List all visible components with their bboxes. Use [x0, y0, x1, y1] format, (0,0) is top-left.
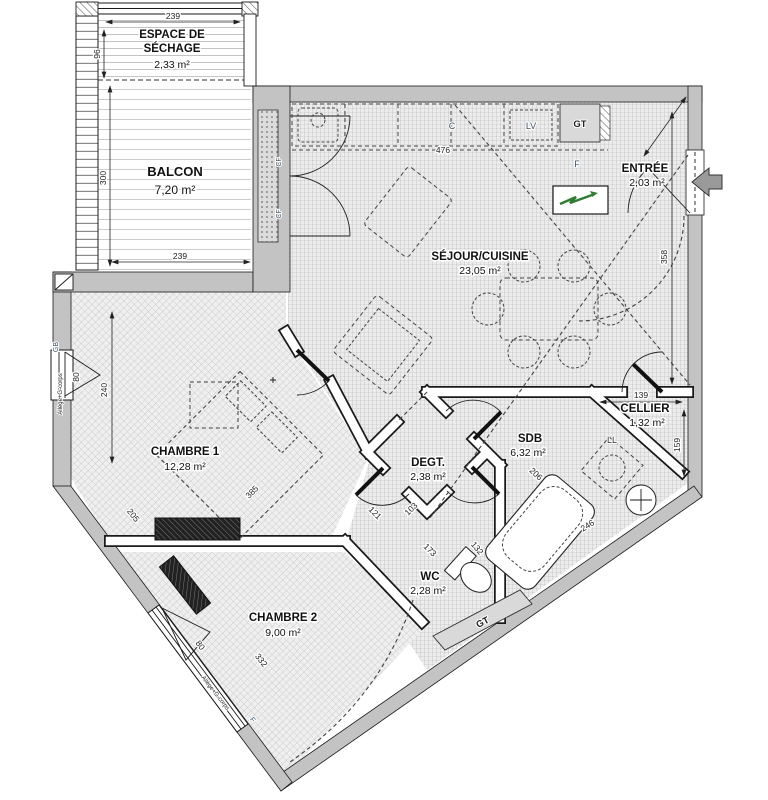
dim-cellier-height: 159	[672, 438, 682, 452]
floor-plan-page: ESPACE DE SÉCHAGE 2,33 m² BALCON 7,20 m²…	[0, 0, 768, 800]
dim-sejour-height: 358	[659, 250, 669, 264]
label-gt-top: GT	[573, 119, 586, 130]
label-ll: LL	[607, 435, 617, 445]
room-area-degt: 2,38 m²	[410, 471, 446, 483]
room-label-chambre2: CHAMBRE 2	[249, 612, 317, 624]
label-cf-a: CF	[276, 157, 283, 166]
room-area-entree: 2,03 m²	[629, 177, 665, 189]
dim-sechage-height: 96	[92, 49, 102, 59]
dim-kitchen-width: 476	[436, 145, 450, 155]
dim-chambre1-window: 80	[71, 372, 81, 382]
room-area-chambre1: 12,28 m²	[164, 461, 206, 473]
wall-right-upper	[688, 86, 702, 152]
room-area-cellier: 1,32 m²	[629, 417, 665, 429]
room-label-sejour: SÉJOUR/CUISINE	[431, 250, 528, 263]
room-label-entree: ENTRÉE	[622, 162, 669, 175]
room-area-wc: 2,28 m²	[410, 585, 446, 597]
label-c: C	[449, 121, 456, 131]
label-lv: LV	[526, 121, 536, 131]
label-cf-b: CF	[276, 209, 283, 218]
wardrobe-1	[155, 518, 240, 540]
wall-right-lower	[688, 213, 702, 497]
dim-cellier-width: 139	[634, 390, 648, 400]
corner-hatch-tl	[76, 2, 98, 16]
dim-balcon-height: 300	[98, 171, 108, 185]
label-allege-ch1: Allège+G-corps	[58, 373, 64, 415]
room-label-cellier: CELLIER	[620, 403, 670, 415]
room-area-sejour: 23,05 m²	[459, 265, 501, 277]
room-area-balcon: 7,20 m²	[155, 183, 196, 197]
sechage-column	[244, 14, 256, 86]
room-label-sechage-2: SÉCHAGE	[144, 42, 201, 55]
wall-top	[253, 86, 702, 102]
dim-balcon-width: 239	[173, 251, 187, 261]
label-f-entree: F	[574, 159, 580, 169]
floor-plan-svg: ESPACE DE SÉCHAGE 2,33 m² BALCON 7,20 m²…	[0, 0, 768, 800]
floor-chambre2	[119, 552, 422, 775]
label-gb: GB	[53, 342, 60, 352]
room-area-sechage: 2,33 m²	[154, 59, 190, 71]
room-label-degt: DEGT.	[411, 457, 445, 469]
dim-sechage-width: 239	[166, 11, 180, 21]
facade-glazing	[258, 110, 278, 242]
wall-band-balcony	[53, 272, 253, 292]
dim-chambre1-height: 240	[99, 383, 109, 397]
gt-top-hatch	[600, 106, 610, 140]
room-label-balcon: BALCON	[147, 164, 203, 179]
room-label-sdb: SDB	[518, 433, 542, 445]
room-area-sdb: 6,32 m²	[510, 447, 546, 459]
room-label-chambre1: CHAMBRE 1	[151, 446, 220, 458]
room-label-sechage-1: ESPACE DE	[139, 29, 205, 41]
room-area-chambre2: 9,00 m²	[265, 627, 301, 639]
room-label-wc: WC	[420, 571, 439, 583]
